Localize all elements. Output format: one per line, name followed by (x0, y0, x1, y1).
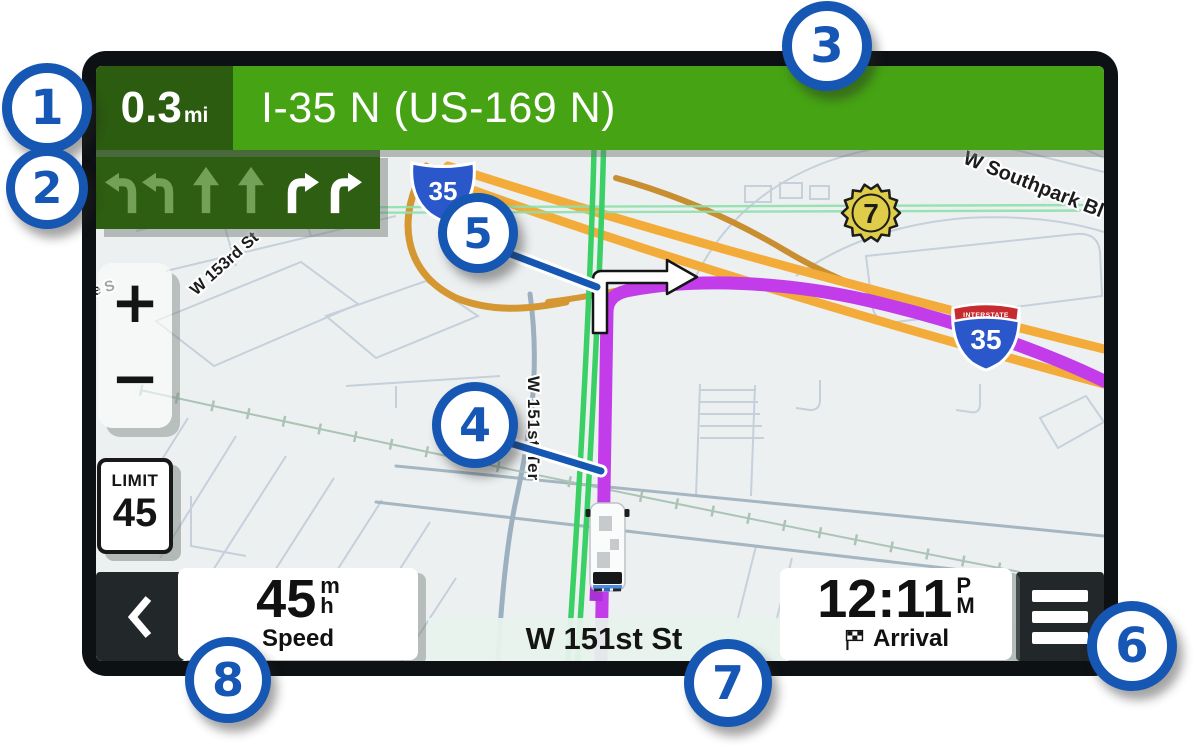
device-screen: 35 INTERSTATE 35 7 W Southpark Bl W 153r… (96, 66, 1104, 661)
road-label-151st-ter: W 151st Ter (524, 376, 543, 481)
callout-8: 8 (185, 637, 271, 723)
svg-text:35: 35 (970, 324, 1001, 355)
speed-label: Speed (262, 625, 334, 653)
callout-7: 7 (684, 639, 772, 727)
lane-turn-left-icon (104, 165, 140, 215)
speed-limit-value: 45 (101, 493, 169, 533)
callout-2: 2 (6, 147, 88, 229)
distance-unit: mi (184, 105, 209, 126)
callout-6: 6 (1087, 601, 1177, 691)
zoom-out-button[interactable]: − (98, 349, 172, 407)
callout-1: 1 (2, 63, 92, 153)
lane-turn-right-icon (327, 165, 363, 215)
hamburger-icon (1032, 611, 1088, 623)
callout-3: 3 (782, 1, 872, 91)
hamburger-icon (1032, 590, 1088, 602)
arrival-label: Arrival (873, 625, 949, 653)
instruction-text: I-35 N (US-169 N) (233, 84, 616, 133)
lane-straight-icon (233, 165, 269, 215)
callout-5: 5 (438, 193, 518, 273)
zoom-in-button[interactable]: + (98, 273, 172, 331)
checkered-flag-icon (843, 628, 866, 651)
lane-turn-left-icon (141, 165, 177, 215)
back-button[interactable] (96, 572, 185, 661)
callout-4: 4 (432, 382, 518, 468)
speed-value: 45 (256, 575, 316, 625)
lane-guidance (96, 150, 380, 229)
distance-value: 0.3 (121, 86, 182, 130)
speed-limit-sign: LIMIT 45 (97, 458, 173, 554)
vehicle-icon[interactable] (586, 503, 630, 591)
zoom-controls: + − (98, 263, 172, 428)
lane-turn-right-icon (284, 165, 320, 215)
svg-text:INTERSTATE: INTERSTATE (963, 312, 1009, 319)
arrival-panel[interactable]: 12:11 P M Arrival (780, 568, 1012, 660)
lane-straight-icon (188, 165, 224, 215)
instruction-bar: I-35 N (US-169 N) (233, 66, 1104, 150)
navigation-banner[interactable]: 0.3 mi I-35 N (US-169 N) (96, 66, 1104, 150)
svg-text:7: 7 (863, 198, 879, 229)
speed-unit-denominator: h (320, 596, 340, 616)
arrival-time: 12:11 (817, 575, 952, 625)
chevron-left-icon (124, 593, 158, 641)
manual-figure: 35 INTERSTATE 35 7 W Southpark Bl W 153r… (0, 0, 1200, 746)
speed-limit-label: LIMIT (101, 471, 169, 491)
arrival-meridiem-bottom: M (956, 596, 974, 616)
next-turn-distance: 0.3 mi (96, 66, 233, 150)
hamburger-icon (1032, 632, 1088, 644)
